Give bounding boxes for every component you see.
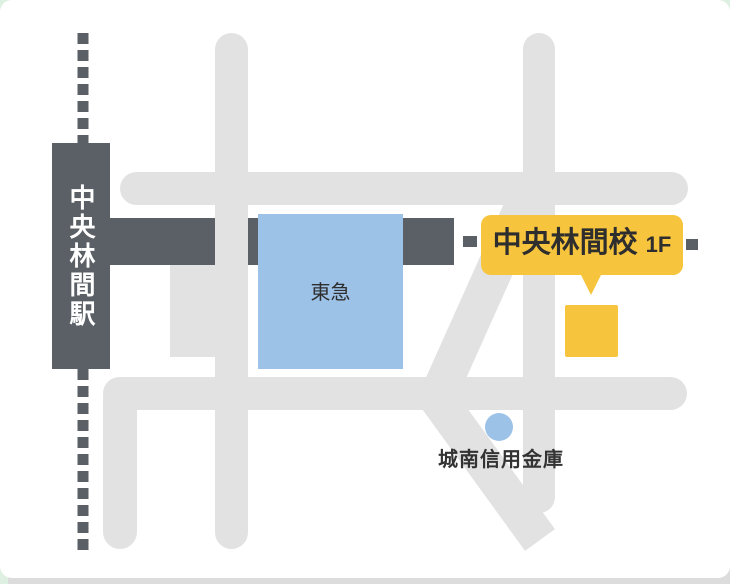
callout-pointer-icon [580,273,602,295]
access-map: 東急 城南信用金庫 中央林間駅 中央林間校 1F [0,0,730,584]
bank-marker-dot [485,413,513,441]
route-dash-left [463,236,477,247]
route-dash-right [686,239,698,250]
tokyu-label: 東急 [258,276,403,305]
station-label: 中央林間駅 [68,184,94,329]
street-vertical-left [103,382,137,549]
school-building [565,305,618,357]
school-callout: 中央林間校 1F [481,215,683,275]
bank-label: 城南信用金庫 [420,443,582,472]
school-callout-name: 中央林間校 [493,229,638,258]
school-callout-floor: 1F [646,234,672,256]
street-horizontal-upper [120,172,688,205]
map-card: 東急 城南信用金庫 中央林間駅 中央林間校 1F [0,0,730,578]
street-stub [170,265,217,357]
street-vertical-mid [215,33,248,549]
tokyu-building: 東急 [258,214,403,369]
station-building: 中央林間駅 [52,143,110,369]
street-horizontal-lower [103,377,687,410]
